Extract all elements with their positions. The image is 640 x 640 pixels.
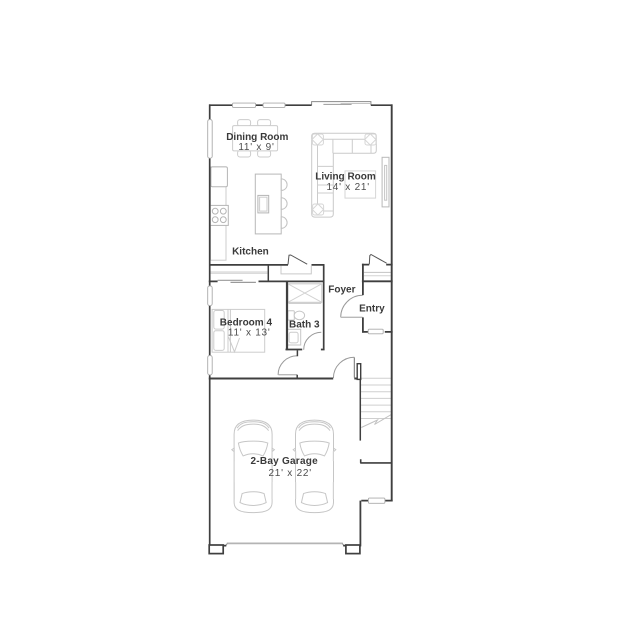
svg-text:Living Room: Living Room [315, 172, 376, 183]
svg-text:Bath 3: Bath 3 [289, 320, 320, 331]
svg-text:Entry: Entry [359, 304, 385, 315]
svg-text:21' x 22': 21' x 22' [269, 468, 312, 479]
svg-text:14' x 21': 14' x 21' [327, 182, 370, 193]
svg-text:2-Bay Garage: 2-Bay Garage [250, 456, 318, 467]
svg-text:Kitchen: Kitchen [232, 247, 269, 258]
svg-text:11' x 9': 11' x 9' [238, 142, 274, 153]
svg-text:11' x 13': 11' x 13' [228, 328, 271, 339]
svg-text:Foyer: Foyer [328, 284, 355, 295]
